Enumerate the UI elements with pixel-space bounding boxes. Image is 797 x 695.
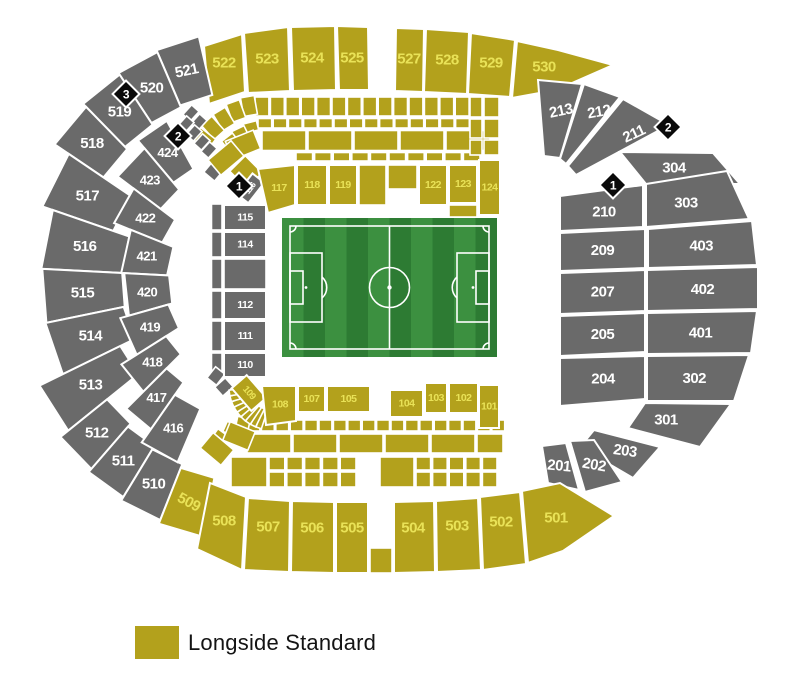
seat-block	[388, 165, 417, 189]
seat-block	[332, 97, 346, 116]
section-105[interactable]: 105	[327, 386, 370, 412]
seat-block	[340, 472, 356, 487]
seat-block	[466, 457, 481, 470]
seat-block	[433, 457, 448, 470]
seat-block	[352, 153, 369, 162]
seat-block	[308, 131, 352, 151]
section-102[interactable]: 102	[449, 383, 478, 413]
section-204: 204	[560, 356, 645, 406]
seat-block	[305, 457, 321, 470]
seat-block	[449, 472, 464, 487]
legend-label: Longside Standard	[188, 630, 376, 656]
seat-block	[364, 119, 378, 129]
seat-block	[389, 153, 406, 162]
seat-block	[322, 457, 338, 470]
seat-block	[449, 420, 462, 431]
section-209: 209	[560, 229, 645, 271]
football-pitch	[282, 218, 497, 357]
seat-block	[394, 97, 408, 116]
seat-block	[287, 472, 303, 487]
seat-block	[445, 153, 462, 162]
seat-block	[212, 291, 223, 319]
section-101[interactable]: 101	[479, 385, 499, 428]
seat-block	[347, 97, 361, 116]
gate-marker-2: 2	[655, 114, 682, 141]
seat-block	[426, 153, 443, 162]
seat-block	[424, 97, 438, 116]
section-504[interactable]: 504	[394, 501, 435, 573]
seat-block	[231, 457, 267, 487]
seat-block	[420, 420, 433, 431]
seat-block	[440, 97, 454, 116]
seat-block	[416, 457, 431, 470]
seat-block	[340, 457, 356, 470]
section-107[interactable]: 107	[298, 386, 325, 412]
seat-block	[322, 472, 338, 487]
seat-block	[262, 131, 306, 151]
section-210: 210	[560, 185, 643, 231]
seat-block	[380, 457, 414, 487]
seat-block	[377, 420, 390, 431]
seat-block	[456, 119, 470, 129]
section-110: 110	[224, 353, 266, 377]
seat-block	[304, 119, 318, 129]
seat-block	[391, 420, 404, 431]
seat-block	[433, 472, 448, 487]
seat-block	[431, 434, 475, 453]
section-104[interactable]: 104	[390, 390, 423, 417]
seat-block	[293, 434, 337, 453]
seat-block	[334, 119, 348, 129]
section-115: 115	[224, 205, 266, 230]
section-205: 205	[560, 313, 645, 356]
section-123[interactable]: 123	[449, 165, 477, 203]
section-403: 403	[648, 221, 757, 268]
seat-block	[484, 119, 499, 138]
seat-block	[409, 97, 423, 116]
seat-block	[466, 472, 481, 487]
seat-block	[370, 153, 387, 162]
seat-block	[258, 119, 272, 129]
seat-block	[455, 97, 469, 116]
stadium-seat-map: 5225235245255275285295305215205195185175…	[0, 0, 797, 695]
seat-block	[296, 153, 313, 162]
section-525[interactable]: 525	[337, 26, 369, 90]
seat-block	[224, 259, 266, 289]
seat-block	[362, 420, 375, 431]
seat-block	[286, 97, 300, 116]
seat-block	[482, 457, 497, 470]
section-528[interactable]: 528	[424, 29, 469, 94]
section-523[interactable]: 523	[244, 27, 290, 93]
seat-block	[333, 420, 346, 431]
section-502[interactable]: 502	[480, 492, 526, 570]
section-103[interactable]: 103	[425, 383, 447, 413]
seat-block	[269, 457, 285, 470]
seat-block	[349, 119, 363, 129]
section-302: 302	[647, 355, 749, 401]
legend-swatch-longside-standard	[135, 626, 179, 659]
seat-block	[212, 204, 223, 230]
seat-block	[333, 153, 350, 162]
seat-block	[273, 119, 287, 129]
seat-block	[339, 434, 383, 453]
section-524[interactable]: 524	[291, 26, 336, 91]
section-119[interactable]: 119	[329, 165, 357, 205]
seat-block	[301, 97, 315, 116]
seat-block	[319, 420, 332, 431]
section-111: 111	[224, 321, 266, 351]
section-108[interactable]: 108	[262, 386, 296, 425]
section-124[interactable]: 124	[479, 160, 500, 215]
seat-block	[288, 119, 302, 129]
section-122[interactable]: 122	[419, 165, 447, 205]
seat-block	[212, 321, 223, 351]
seat-block	[470, 119, 482, 138]
seat-block	[484, 97, 499, 117]
seat-block	[470, 140, 482, 155]
section-501[interactable]: 501	[522, 483, 614, 563]
seat-block	[470, 97, 482, 117]
seat-block	[484, 140, 499, 155]
seat-block	[348, 420, 361, 431]
seat-block	[408, 153, 425, 162]
seat-block	[363, 97, 377, 116]
seat-block	[395, 119, 409, 129]
seat-block	[378, 97, 392, 116]
section-112: 112	[224, 291, 266, 319]
section-503[interactable]: 503	[436, 498, 481, 572]
section-529[interactable]: 529	[468, 33, 515, 97]
seat-block	[416, 472, 431, 487]
seat-block	[477, 434, 503, 453]
seat-block	[359, 165, 386, 205]
seat-block	[287, 457, 303, 470]
seat-block	[212, 259, 223, 289]
seat-block	[380, 119, 394, 129]
section-507[interactable]: 507	[244, 498, 290, 572]
seat-block	[482, 472, 497, 487]
section-402: 402	[647, 267, 758, 311]
seat-block	[305, 420, 318, 431]
seat-block	[405, 420, 418, 431]
seat-block	[425, 119, 439, 129]
seat-block	[270, 97, 284, 116]
seat-block	[315, 153, 332, 162]
seat-block	[212, 232, 223, 257]
seat-block	[434, 420, 447, 431]
seat-block	[370, 548, 392, 573]
section-505[interactable]: 505	[336, 502, 368, 573]
section-207: 207	[560, 270, 645, 314]
seat-block	[305, 472, 321, 487]
seat-block	[317, 97, 331, 116]
section-118[interactable]: 118	[297, 165, 327, 205]
seat-block	[449, 457, 464, 470]
seat-map-canvas: 5225235245255275285295305215205195185175…	[0, 0, 797, 695]
seat-block	[385, 434, 429, 453]
seat-block	[400, 131, 444, 151]
section-114: 114	[224, 232, 266, 257]
seat-block	[354, 131, 398, 151]
seat-block	[319, 119, 333, 129]
section-506[interactable]: 506	[291, 501, 334, 573]
seat-block	[410, 119, 424, 129]
seat-block	[440, 119, 454, 129]
section-301: 301	[628, 403, 731, 447]
seat-block	[269, 472, 285, 487]
seat-block	[463, 420, 476, 431]
seat-block	[449, 205, 477, 217]
section-527[interactable]: 527	[395, 28, 424, 92]
legend: Longside Standard	[135, 626, 376, 659]
section-401: 401	[647, 311, 757, 354]
